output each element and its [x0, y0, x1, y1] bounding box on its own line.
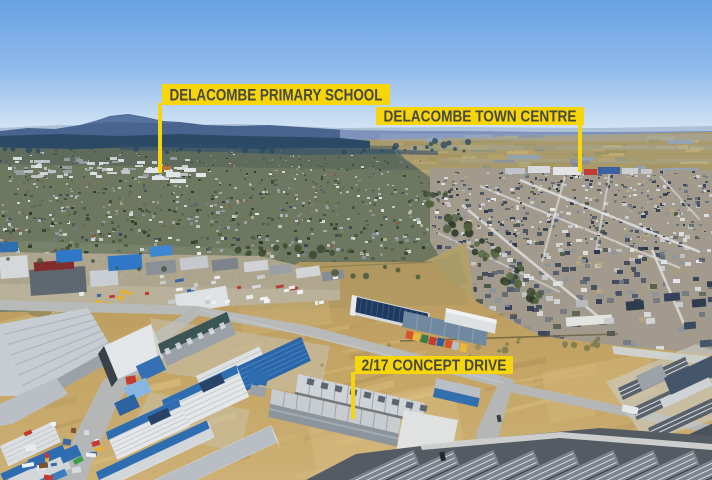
svg-text:DELACOMBE TOWN CENTRE: DELACOMBE TOWN CENTRE [384, 109, 577, 126]
svg-text:2/17 CONCEPT DRIVE: 2/17 CONCEPT DRIVE [362, 358, 507, 375]
svg-text:DELACOMBE PRIMARY SCHOOL: DELACOMBE PRIMARY SCHOOL [170, 86, 383, 105]
